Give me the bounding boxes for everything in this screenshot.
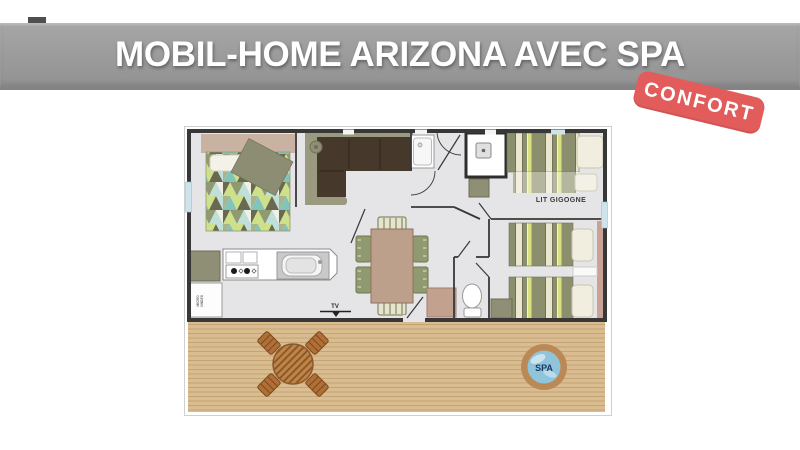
- trundle-pillow: [577, 136, 603, 168]
- slide: MOBIL-HOME ARIZONA AVEC SPA CONFORT: [0, 0, 800, 450]
- microwave-unit: [190, 283, 222, 317]
- deck-round-table: [273, 344, 313, 384]
- kitchen-cabinet: [190, 251, 220, 281]
- sink-faucet: [318, 260, 322, 264]
- sofa-end-cap: [315, 197, 347, 205]
- deck: SPA: [188, 322, 605, 412]
- window-top: [485, 130, 496, 135]
- master-bedroom: [201, 134, 295, 231]
- svg-text:ONDES: ONDES: [200, 294, 204, 307]
- hob-burner: [231, 268, 237, 274]
- hob: [226, 265, 258, 278]
- bedroom-cabinet: [491, 299, 512, 318]
- window-right: [602, 202, 608, 228]
- window-top: [551, 130, 565, 135]
- tv-label: TV: [331, 304, 339, 310]
- floorplan-svg: SPA: [185, 127, 611, 415]
- toilet-bowl: [463, 284, 482, 308]
- twin-pillow: [572, 285, 593, 317]
- window-top: [415, 130, 427, 135]
- toilet-tank: [464, 308, 481, 317]
- twin-bed: [509, 223, 573, 266]
- page-title: MOBIL-HOME ARIZONA AVEC SPA: [115, 35, 685, 75]
- trundle-main-bed: [507, 133, 579, 172]
- washbasin-drain: [418, 143, 422, 147]
- bathroom-cabinet: [469, 179, 489, 197]
- cupboard-door: [243, 252, 257, 263]
- trundle-bed-label: LIT GIGOGNE: [536, 197, 586, 204]
- spa-hot-tub: SPA: [521, 344, 567, 390]
- dining-table: [371, 229, 413, 303]
- entrance-opening: [403, 315, 425, 322]
- nightstand: [573, 267, 597, 276]
- floorplan-image: SPA: [184, 126, 612, 416]
- trundle-pullout-bed: [513, 172, 597, 193]
- window-top: [343, 130, 354, 135]
- sink-bowl: [286, 258, 316, 273]
- twin-bed: [509, 277, 573, 319]
- twin-pillow: [572, 229, 593, 261]
- microwave-label: MICRO ONDES: [196, 294, 204, 307]
- hall-cabinet: [427, 288, 456, 317]
- spa-label: SPA: [535, 363, 553, 373]
- washbasin-bowl: [414, 138, 432, 165]
- headboard-shelf: [597, 221, 604, 319]
- cupboard-door: [226, 252, 241, 263]
- sofa-armrest-dot: [314, 145, 318, 149]
- hob-burner: [244, 268, 250, 274]
- shower-drain: [482, 149, 486, 153]
- window-left: [186, 182, 192, 212]
